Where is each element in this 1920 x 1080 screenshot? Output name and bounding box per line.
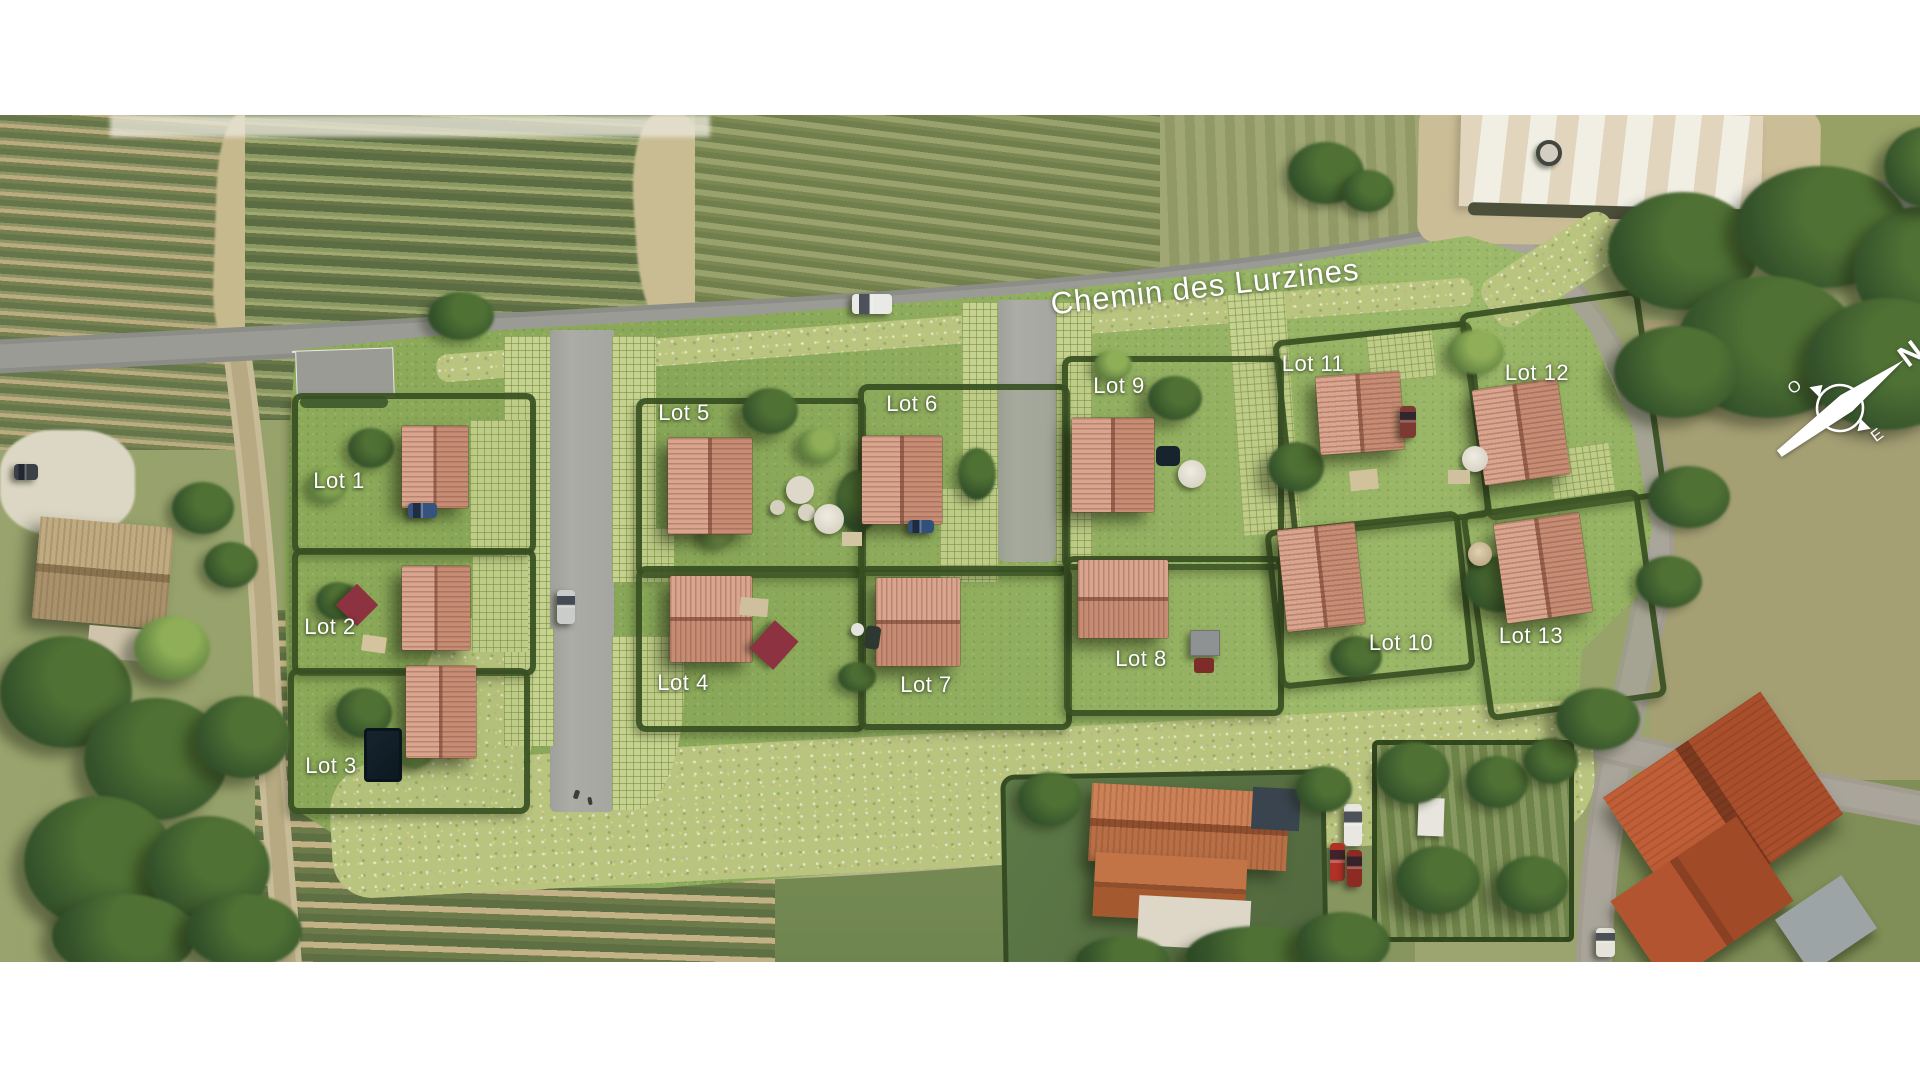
letterbox-bottom	[0, 962, 1920, 1080]
tree	[1614, 326, 1738, 418]
deck	[739, 597, 768, 617]
lot-label-1: Lot 1	[313, 468, 364, 494]
patio	[361, 634, 387, 653]
garden-chair	[770, 500, 785, 515]
garden-item	[863, 625, 881, 650]
garden-chair	[798, 504, 815, 521]
bush	[838, 662, 876, 692]
patio	[1349, 469, 1379, 492]
tree	[1268, 442, 1324, 492]
tree	[1636, 556, 1702, 608]
lot-label-6: Lot 6	[886, 391, 937, 417]
house-1	[402, 426, 468, 508]
car	[1400, 406, 1416, 438]
neighbor-garage	[1251, 787, 1301, 831]
car	[1330, 843, 1345, 881]
bush	[798, 428, 840, 462]
lot-label-9: Lot 9	[1093, 373, 1144, 399]
tree	[1648, 466, 1730, 528]
parasol	[814, 504, 844, 534]
greenhouse	[1417, 798, 1444, 837]
car	[408, 503, 437, 518]
lot-label-8: Lot 8	[1115, 646, 1166, 672]
tree	[1342, 170, 1394, 212]
tree	[1148, 376, 1202, 420]
compass-north-label: N	[1892, 334, 1920, 373]
pool	[364, 728, 402, 782]
car	[1596, 928, 1615, 957]
car	[908, 520, 934, 533]
lot-label-4: Lot 4	[657, 670, 708, 696]
tree	[1376, 742, 1450, 804]
tree	[134, 616, 210, 680]
garden-shed	[1190, 630, 1220, 656]
car	[557, 590, 575, 624]
lot-label-11: Lot 11	[1282, 351, 1345, 377]
garden-dome	[1468, 542, 1492, 566]
tree	[196, 696, 290, 778]
house-3	[406, 666, 476, 758]
lot-label-2: Lot 2	[304, 614, 355, 640]
tree	[1556, 688, 1640, 750]
house-9	[1072, 418, 1154, 512]
well-icon	[1536, 140, 1562, 166]
tree	[428, 292, 494, 340]
lot-label-13: Lot 13	[1499, 623, 1563, 649]
car	[14, 464, 38, 480]
farmhouse-roof	[32, 516, 174, 629]
patio	[842, 532, 862, 546]
parasol	[1178, 460, 1206, 488]
garden-table	[786, 476, 814, 504]
bush	[1448, 330, 1504, 374]
spa	[1194, 658, 1214, 673]
compass-east-label: E	[1868, 426, 1887, 446]
spa	[1156, 446, 1180, 466]
tree	[204, 542, 258, 588]
tree	[1396, 846, 1480, 914]
house-7	[876, 578, 960, 666]
patio	[1448, 470, 1470, 484]
house-4	[670, 576, 752, 662]
car	[1347, 850, 1362, 887]
tree	[1496, 856, 1568, 914]
tree	[186, 894, 302, 968]
letterbox-top	[0, 0, 1920, 115]
tree	[348, 428, 394, 468]
lot-label-7: Lot 7	[900, 672, 951, 698]
house-2	[402, 566, 470, 650]
house-11	[1315, 371, 1404, 455]
house-13	[1493, 513, 1592, 624]
parasol	[1462, 446, 1488, 472]
house-6	[862, 436, 942, 524]
compass-west-label: O	[1785, 377, 1805, 398]
house-10	[1277, 522, 1365, 632]
access-road-main	[550, 330, 614, 812]
garden-table	[851, 623, 864, 636]
compass-needle	[1773, 352, 1910, 462]
lot-label-12: Lot 12	[1505, 360, 1569, 386]
tree	[1296, 766, 1352, 812]
site-plan-canvas: Chemin des Lurzines Lot 1 Lot 2 Lot 3 Lo…	[0, 0, 1920, 1080]
tree	[1466, 756, 1528, 808]
tree	[1524, 738, 1578, 784]
compass-icon: N O E	[1750, 333, 1920, 483]
bush	[958, 448, 996, 500]
car	[852, 294, 892, 314]
tree	[172, 482, 234, 534]
house-5	[668, 438, 752, 534]
house-8	[1078, 560, 1168, 638]
lot-label-10: Lot 10	[1369, 630, 1433, 656]
lot-label-5: Lot 5	[658, 400, 709, 426]
lot-label-3: Lot 3	[305, 753, 356, 779]
house-12	[1472, 378, 1571, 485]
tree	[1018, 772, 1082, 826]
car	[1344, 804, 1362, 846]
tree	[742, 388, 798, 434]
